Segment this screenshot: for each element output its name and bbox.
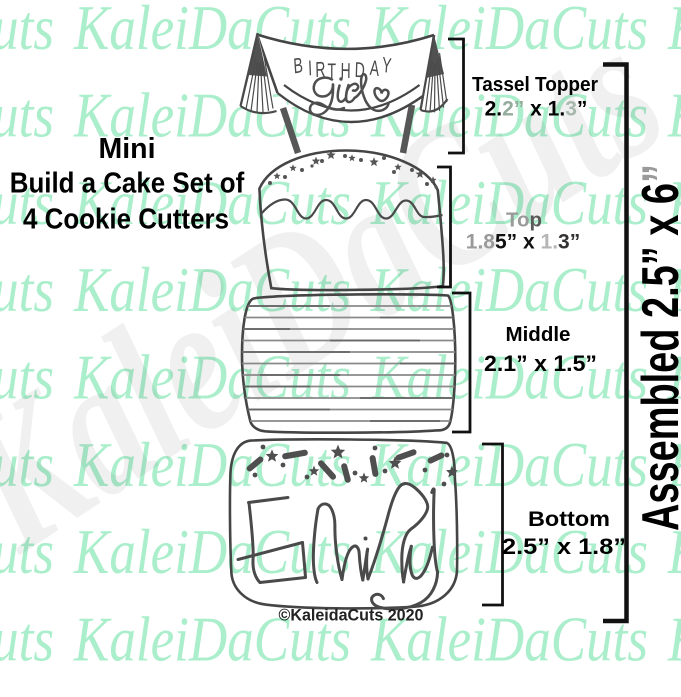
svg-text:Assembled 2.5” x 6”: Assembled 2.5” x 6” — [632, 164, 681, 531]
svg-text:Top: Top — [506, 209, 542, 232]
svg-text:Mini: Mini — [99, 133, 156, 165]
svg-text:Bottom: Bottom — [528, 508, 610, 531]
svg-text:Middle: Middle — [506, 323, 571, 346]
svg-text:Tassel Topper: Tassel Topper — [472, 73, 598, 96]
svg-text:4 Cookie Cutters: 4 Cookie Cutters — [23, 204, 229, 236]
svg-text:2.1” x 1.5”: 2.1” x 1.5” — [484, 351, 597, 376]
svg-text:©KaleidaCuts 2020: ©KaleidaCuts 2020 — [279, 607, 424, 625]
svg-text:Build a Cake Set of: Build a Cake Set of — [10, 168, 245, 200]
svg-text:2.2” x 1.3”: 2.2” x 1.3” — [485, 98, 588, 121]
svg-text:2.5” x 1.8”: 2.5” x 1.8” — [502, 534, 626, 559]
svg-text:1.85” x 1.3”: 1.85” x 1.3” — [466, 231, 580, 254]
